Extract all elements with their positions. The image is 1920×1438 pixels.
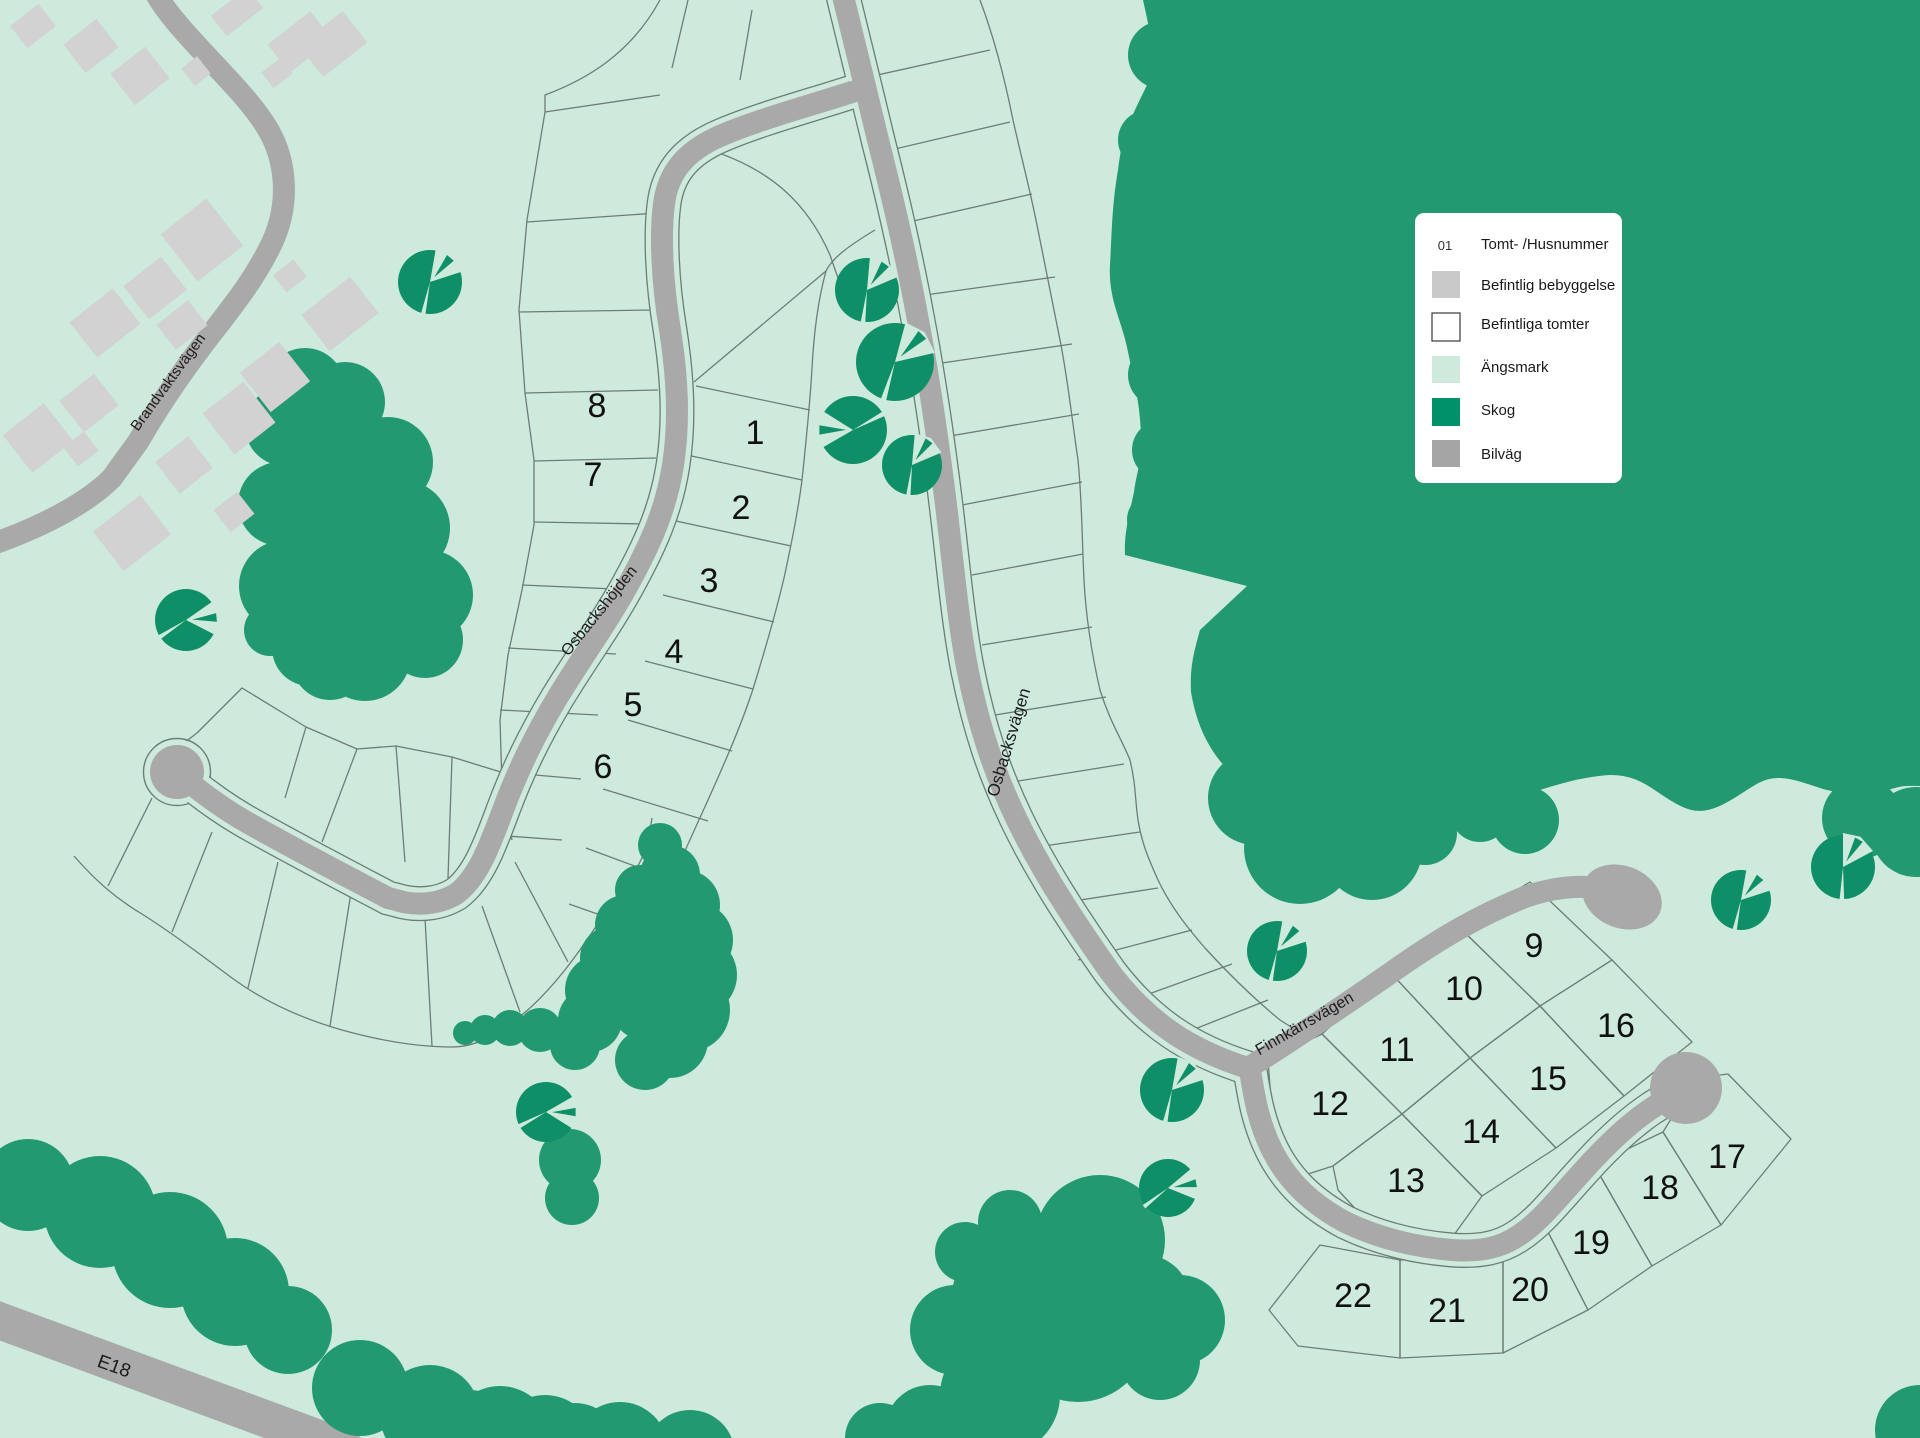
svg-text:14: 14: [1462, 1113, 1500, 1151]
svg-text:13: 13: [1387, 1162, 1425, 1200]
svg-text:1: 1: [746, 414, 765, 452]
svg-text:3: 3: [700, 562, 719, 600]
svg-text:Tomt- /Husnummer: Tomt- /Husnummer: [1481, 236, 1609, 253]
svg-text:2: 2: [732, 489, 751, 527]
svg-text:5: 5: [624, 686, 643, 724]
svg-text:01: 01: [1438, 238, 1452, 253]
svg-text:Ängsmark: Ängsmark: [1481, 359, 1549, 376]
svg-text:Befintlig bebyggelse: Befintlig bebyggelse: [1481, 277, 1615, 294]
svg-text:6: 6: [594, 748, 613, 786]
svg-text:10: 10: [1445, 970, 1483, 1008]
svg-text:Befintliga tomter: Befintliga tomter: [1481, 316, 1589, 333]
svg-text:4: 4: [665, 633, 684, 671]
svg-text:Skog: Skog: [1481, 402, 1515, 419]
svg-text:Bilväg: Bilväg: [1481, 446, 1522, 463]
svg-text:18: 18: [1641, 1169, 1679, 1207]
svg-text:15: 15: [1529, 1060, 1567, 1098]
svg-text:22: 22: [1334, 1277, 1372, 1315]
svg-text:21: 21: [1428, 1292, 1466, 1330]
svg-text:16: 16: [1597, 1007, 1635, 1045]
svg-text:8: 8: [588, 387, 607, 425]
svg-text:20: 20: [1511, 1271, 1549, 1309]
svg-text:19: 19: [1572, 1224, 1610, 1262]
svg-text:9: 9: [1525, 927, 1544, 965]
svg-text:7: 7: [584, 456, 603, 494]
svg-text:17: 17: [1708, 1138, 1746, 1176]
svg-text:11: 11: [1379, 1031, 1414, 1069]
svg-text:12: 12: [1311, 1085, 1349, 1123]
